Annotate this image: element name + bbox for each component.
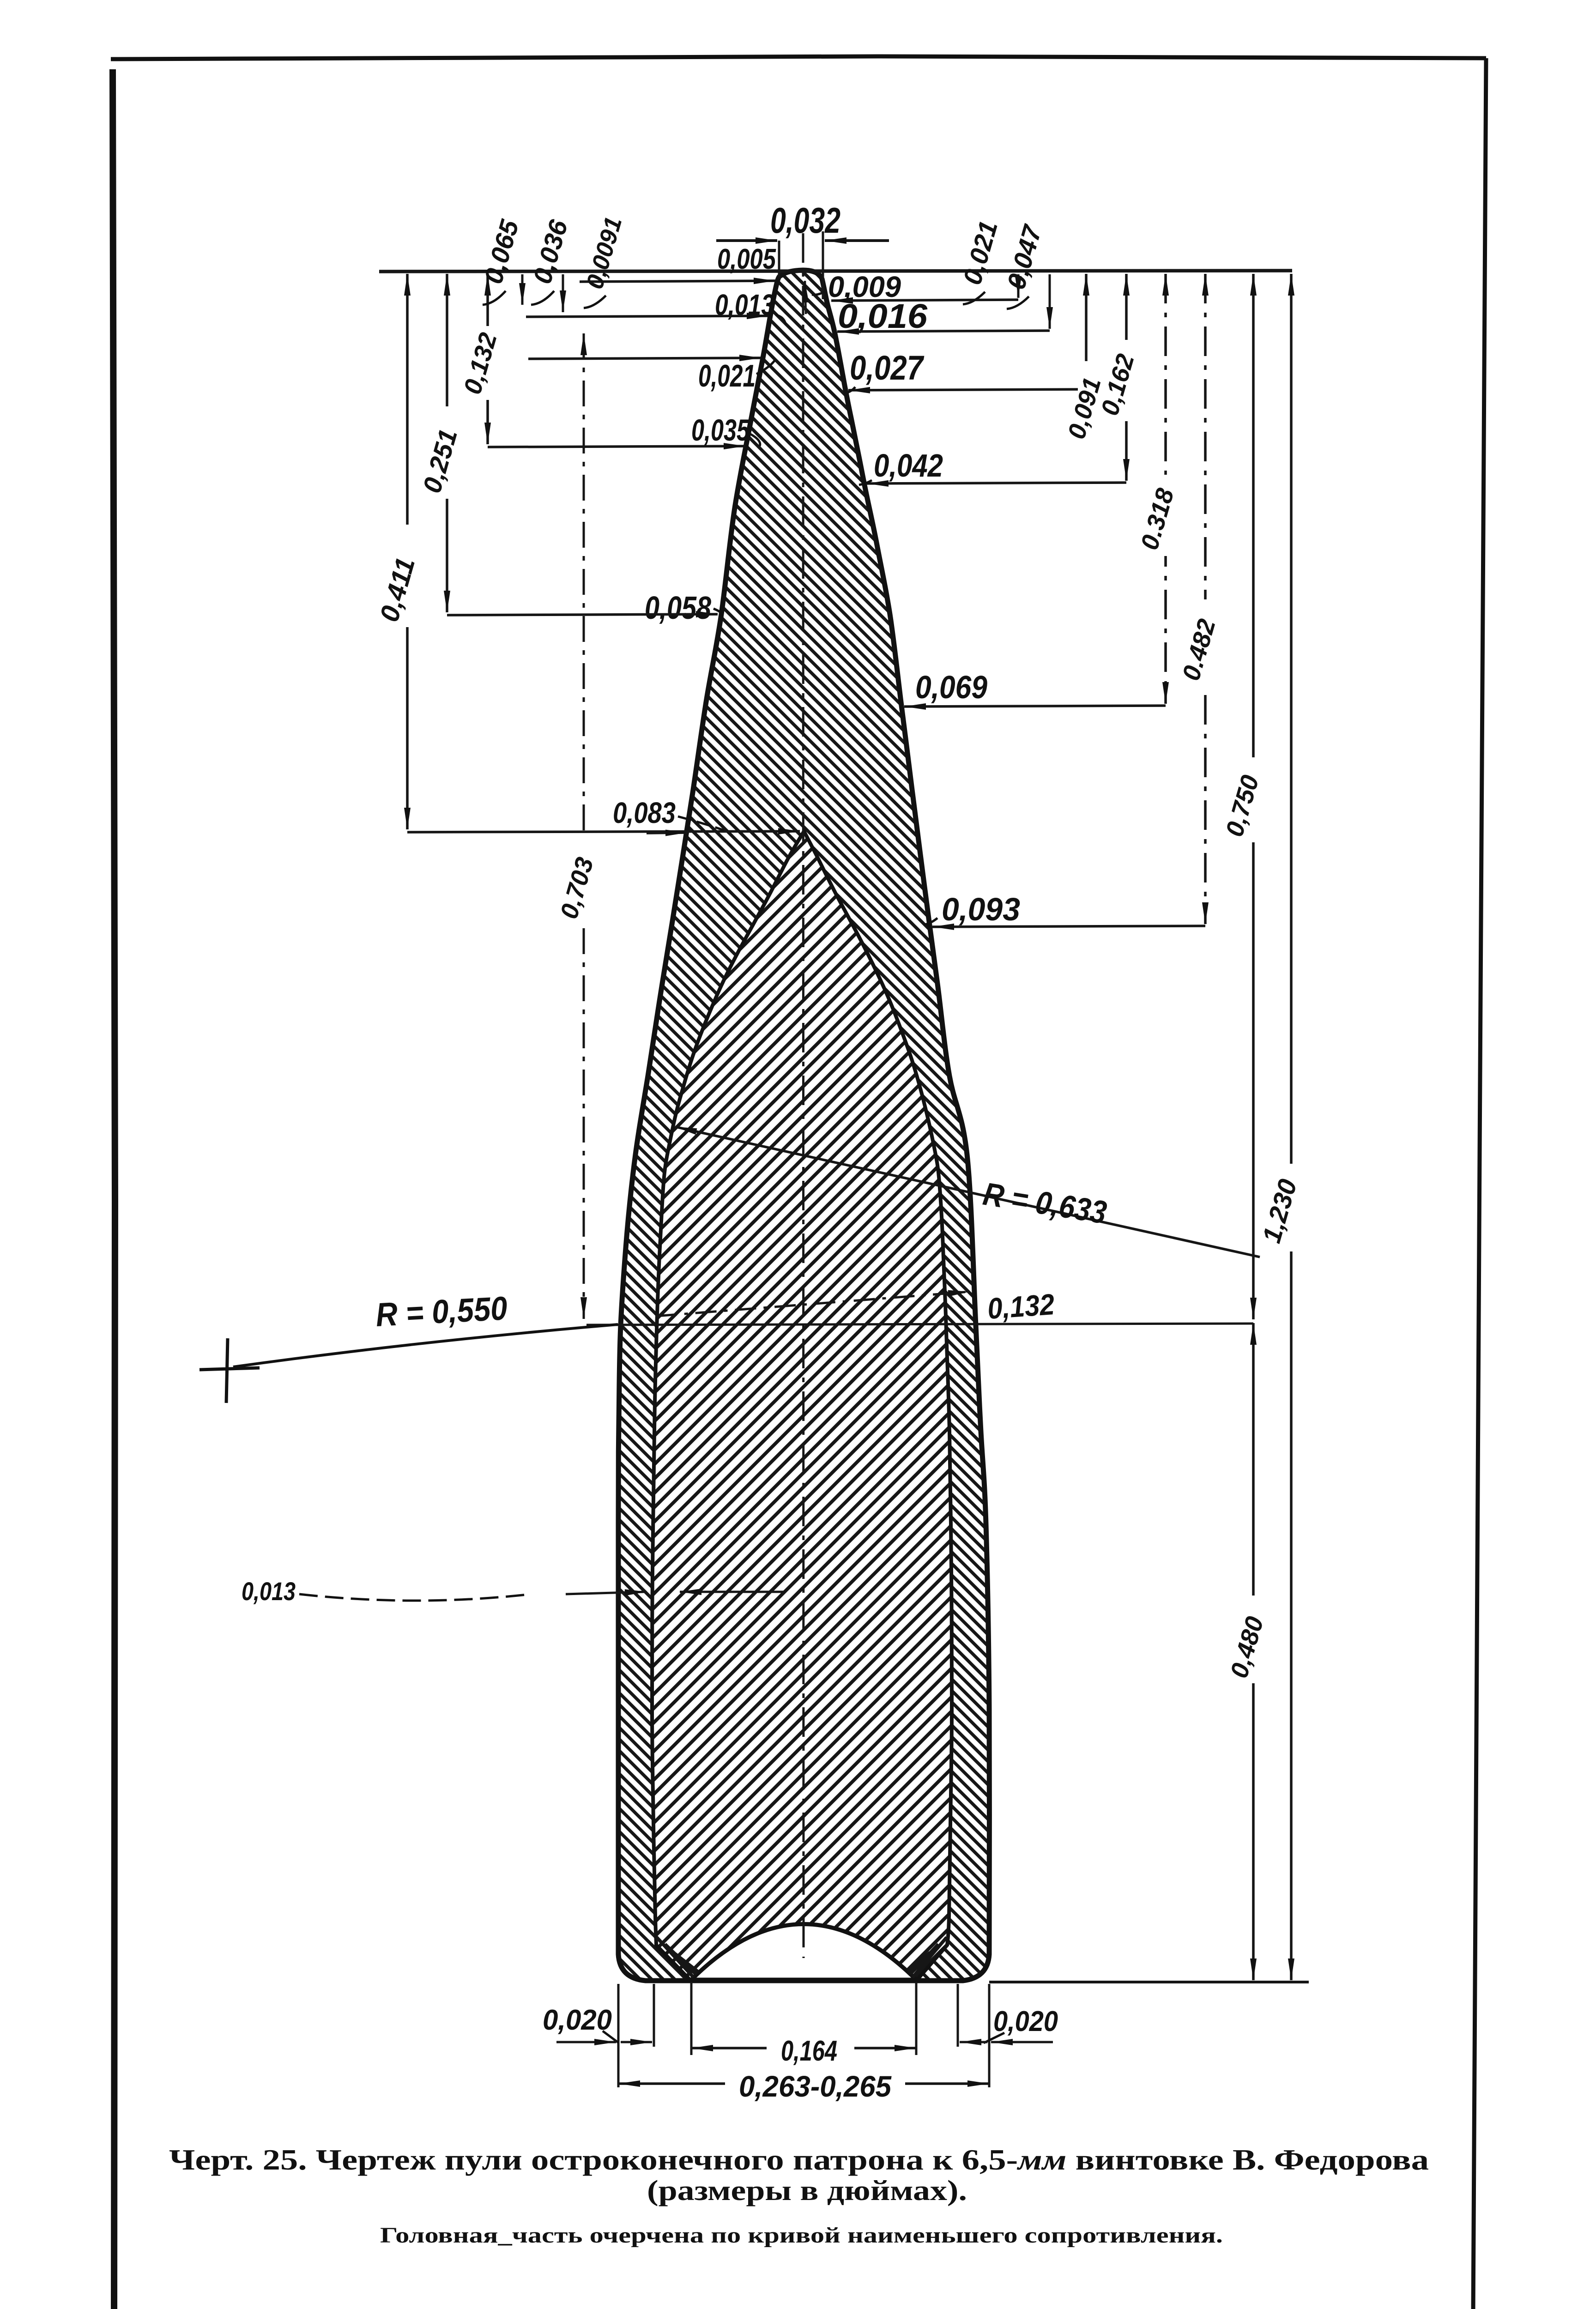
svg-text:0,047: 0,047: [1001, 221, 1047, 292]
svg-text:0,058: 0,058: [645, 590, 711, 626]
svg-text:Головная_часть очерчена по кри: Головная_часть очерчена по кривой наимен…: [380, 2223, 1223, 2248]
svg-text:0,016: 0,016: [838, 297, 928, 335]
svg-text:0,027: 0,027: [850, 349, 925, 387]
svg-text:0,036: 0,036: [527, 216, 573, 287]
svg-text:0,035: 0,035: [691, 413, 750, 447]
svg-text:0,042: 0,042: [874, 447, 943, 484]
svg-text:R = 0,633: R = 0,633: [981, 1176, 1109, 1231]
svg-text:0,013: 0,013: [242, 1577, 296, 1606]
svg-text:0,021: 0,021: [957, 218, 1003, 288]
svg-text:0,069: 0,069: [915, 669, 987, 705]
svg-text:0,020: 0,020: [543, 2004, 612, 2036]
svg-text:0,065: 0,065: [478, 216, 524, 287]
svg-text:R = 0,550: R = 0,550: [375, 1290, 508, 1334]
svg-text:0,021: 0,021: [698, 358, 756, 393]
svg-text:0,093: 0,093: [942, 891, 1020, 927]
svg-text:0,132: 0,132: [986, 1287, 1056, 1325]
svg-text:0,083: 0,083: [613, 796, 676, 829]
svg-text:0,005: 0,005: [717, 243, 776, 275]
svg-text:0,032: 0,032: [770, 200, 840, 241]
svg-text:0,164: 0,164: [781, 2035, 837, 2067]
svg-text:Черт. 25. Чертеж пули острокон: Черт. 25. Чертеж пули остроконечного пат…: [169, 2143, 1429, 2176]
svg-text:0,263-0,265: 0,263-0,265: [739, 2070, 892, 2103]
svg-text:(размеры в дюймах).: (размеры в дюймах).: [647, 2175, 967, 2206]
